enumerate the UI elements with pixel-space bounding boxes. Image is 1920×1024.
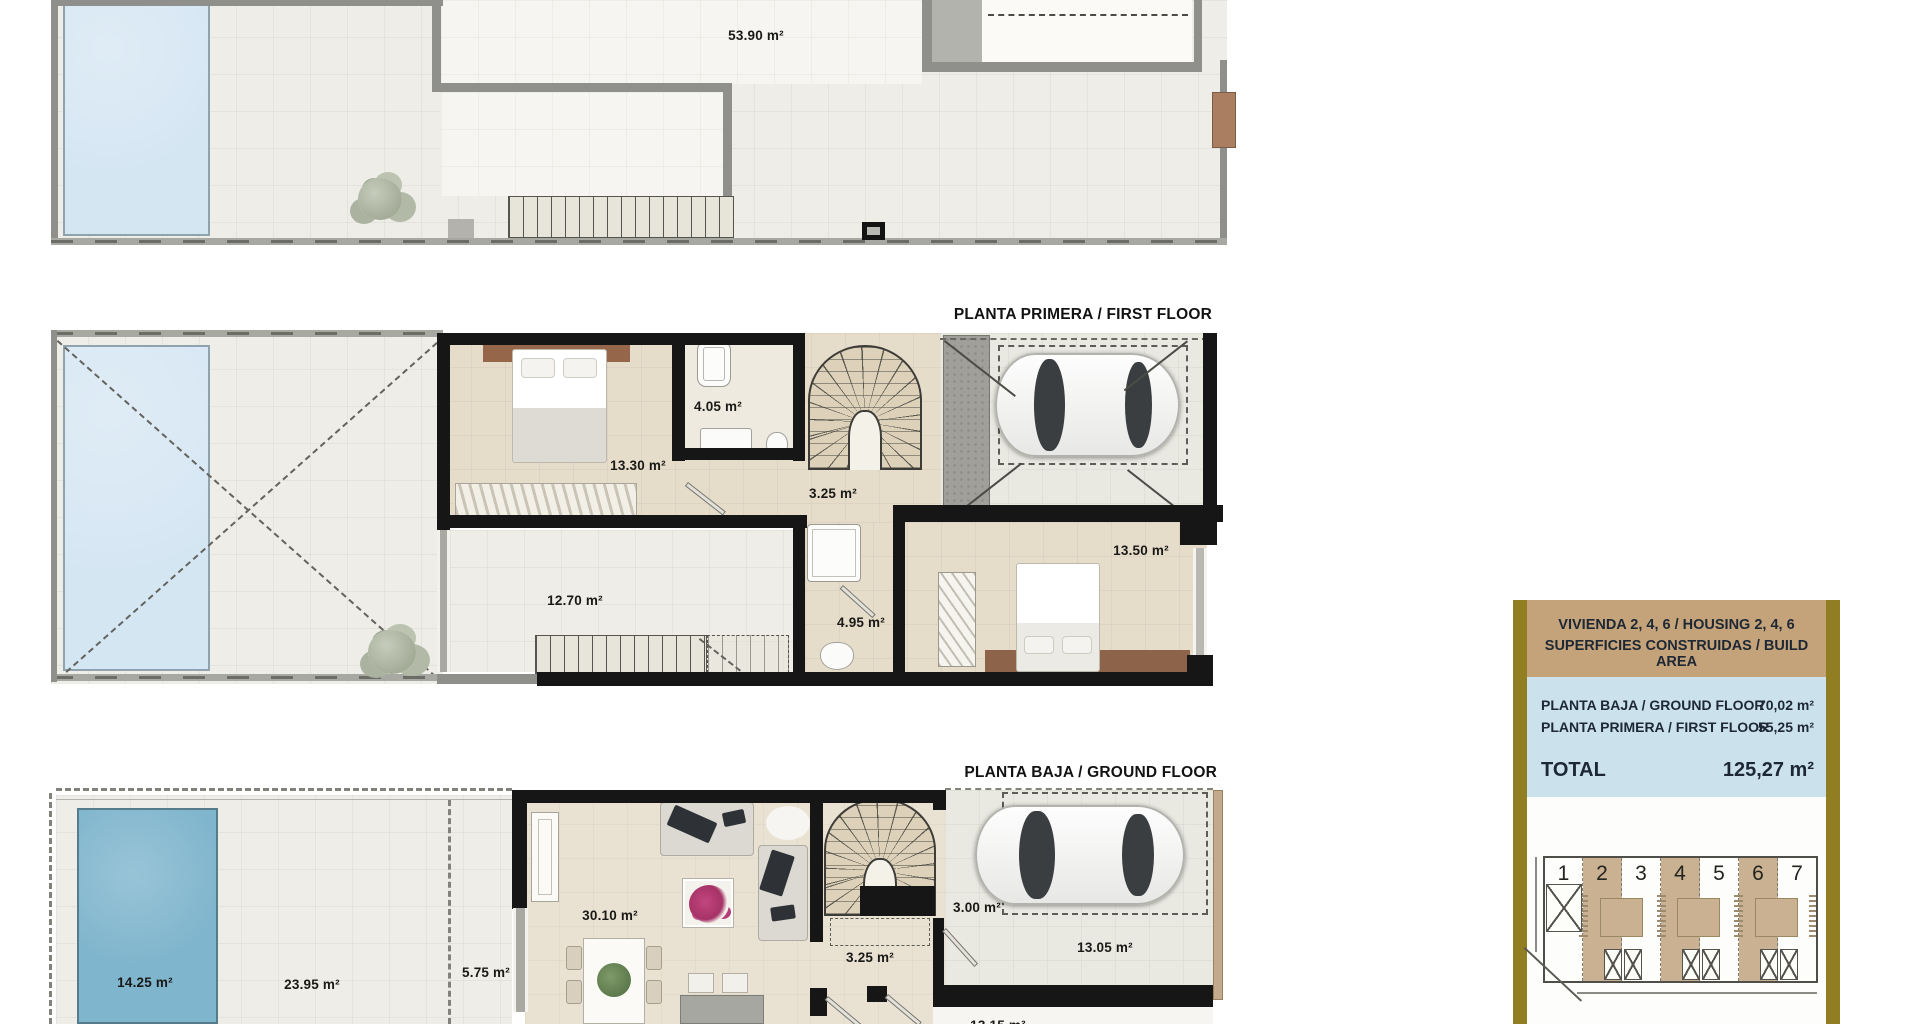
gf-dining-chair-r1	[646, 946, 662, 970]
gf-dining-chair-l1	[566, 946, 582, 970]
site-road-line	[1577, 992, 1817, 994]
panel-total-label: TOTAL	[1541, 759, 1606, 782]
gf-flower-bloom	[689, 885, 729, 923]
bulkhead-wall-right	[1194, 0, 1202, 62]
ff-bed2-pillow-right	[1062, 636, 1092, 654]
site-stair-hatch-3	[1734, 892, 1743, 937]
panel-title-line2: SUPERFICIES CONSTRUIDAS / BUILD AREA	[1527, 638, 1826, 670]
ff-label-bedroom1: 13.30 m²	[610, 458, 666, 473]
gf-flower-plant	[682, 878, 734, 928]
gf-car	[975, 805, 1185, 905]
gf-porch-dash	[448, 800, 451, 1024]
gf-garden-edge	[56, 799, 512, 800]
gf-door-stub-2	[867, 986, 887, 1002]
roof-upper-deck	[441, 0, 923, 84]
ff-wall-bath-stairs	[793, 333, 805, 461]
gf-sofa-top	[660, 802, 754, 856]
ff-wall-bed-bath	[672, 333, 685, 461]
gf-dining-chair-l2	[566, 980, 582, 1004]
gf-wall-entry-top	[933, 790, 946, 810]
ff-bed1	[512, 349, 607, 463]
roof-skylight-marker	[862, 222, 885, 240]
gf-carport-top-dash	[945, 788, 1213, 790]
gf-sofa-right-throw	[759, 849, 795, 896]
ground-floor-title: PLANTA BAJA / GROUND FLOOR	[925, 764, 1217, 782]
first-floor-title: PLANTA PRIMERA / FIRST FLOOR	[920, 306, 1212, 324]
ff-label-bedroom2: 13.50 m²	[1113, 543, 1169, 558]
ff-wall-band-right	[893, 505, 1223, 522]
site-garage-2b	[1702, 949, 1720, 980]
gf-dining-plant	[597, 963, 631, 997]
site-unit1-terrace	[1546, 884, 1582, 932]
gf-kitchen-stool1	[688, 973, 714, 993]
site-core-3	[1755, 898, 1798, 937]
site-garage-2a	[1682, 949, 1700, 980]
roof-plan: 53.90 m²	[0, 0, 1920, 260]
gf-kitchen-stool2	[722, 973, 748, 993]
ff-garage-top-dash	[940, 338, 1208, 340]
gf-sofa-right-cushion	[770, 904, 796, 921]
ff-bathtub	[697, 341, 731, 387]
ff-wall-mid	[437, 515, 807, 528]
ff-bed1-pillow-right	[563, 358, 597, 378]
ff-wall-left	[437, 333, 450, 530]
roof-wall-left	[51, 0, 58, 245]
ff-bedroom1-rug	[455, 483, 637, 517]
gf-label-living: 30.10 m²	[582, 908, 638, 923]
ff-wall-bottom-gray	[437, 674, 537, 684]
ff-label-terrace: 12.70 m²	[547, 593, 603, 608]
ff-wall-step	[1180, 522, 1217, 545]
roof-wall-top	[51, 0, 443, 6]
panel-row2-label: PLANTA PRIMERA / FIRST FLOOR	[1541, 719, 1769, 735]
panel-areas: PLANTA BAJA / GROUND FLOOR 70,02 m² PLAN…	[1527, 677, 1826, 797]
gf-wall-entry-side	[933, 918, 944, 988]
gf-label-carport: 13.05 m²	[1077, 940, 1133, 955]
ff-label-bathroom2: 4.95 m²	[837, 615, 885, 630]
ff-sink	[700, 428, 752, 450]
gf-dining-chair-r2	[646, 980, 662, 1004]
bulkhead-dash-line	[988, 14, 1188, 16]
site-garage-3a	[1760, 949, 1778, 980]
gf-sideboard	[531, 812, 559, 902]
gf-label-hall: 3.25 m²	[846, 950, 894, 965]
roof-brown-element	[1212, 92, 1236, 148]
site-core-2	[1677, 898, 1720, 937]
gf-label-entry: 3.00 m²	[953, 900, 1001, 915]
ff-wardrobe	[938, 572, 976, 667]
gf-sofa-right	[758, 845, 808, 941]
ff-label-bathroom1: 4.05 m²	[694, 399, 742, 414]
roof-wall-inner-horz	[432, 83, 732, 92]
site-stair-hatch-2	[1657, 892, 1666, 937]
gf-wall-left	[512, 803, 527, 909]
gf-wall-bottom	[933, 985, 1213, 1007]
summary-panel: VIVIENDA 2, 4, 6 / HOUSING 2, 4, 6 SUPER…	[1513, 600, 1840, 1024]
roof-staircase	[508, 196, 734, 238]
gf-pool	[77, 808, 218, 1024]
panel-row1-label: PLANTA BAJA / GROUND FLOOR	[1541, 697, 1764, 713]
roof-pool	[63, 0, 210, 236]
roof-wall-right	[1220, 60, 1227, 245]
site-stair-hatch-4	[1809, 892, 1816, 937]
ff-wall-bottom	[537, 672, 1213, 686]
ff-plant	[368, 630, 416, 674]
ff-wall-top	[437, 333, 805, 345]
ff-wall-garage-right	[1203, 333, 1217, 523]
gf-sofa-top-throw	[667, 805, 718, 844]
ff-wall-bath2-right	[893, 522, 905, 672]
gf-stair-dashed-landing	[830, 918, 930, 946]
bulkhead-shade	[932, 0, 982, 62]
ff-bed1-pillow-left	[521, 358, 555, 378]
roof-boundary-bottom	[51, 238, 1227, 245]
ff-terrace-window-band	[437, 530, 450, 672]
ff-concrete-pillar	[943, 335, 990, 507]
site-plot-edge	[1535, 857, 1537, 952]
gf-label-bottom-room: 13.15 m²	[970, 1018, 1026, 1024]
site-plan: 1 2 3 4 5 6 7	[1527, 797, 1826, 1024]
ff-toilet2	[820, 642, 854, 670]
ff-wall-bath-bottom	[672, 448, 805, 460]
bulkhead-wall-bottom	[922, 62, 1202, 72]
roof-plant	[358, 178, 402, 220]
ff-boundary-left	[51, 330, 57, 682]
ff-boundary-bottom	[51, 674, 443, 681]
ff-boundary-top	[51, 330, 443, 337]
panel-title-line1: VIVIENDA 2, 4, 6 / HOUSING 2, 4, 6	[1527, 617, 1826, 633]
gf-door-stub-1	[810, 988, 827, 1016]
gf-wall-under-stairs	[860, 886, 935, 916]
panel-frame-left	[1513, 600, 1527, 1024]
gf-plot-dash-left	[49, 793, 52, 1024]
panel-row2-value: 55,25 m²	[1758, 719, 1814, 735]
roof-wall-inner-vert2	[723, 83, 732, 197]
ff-bed2-pillow-left	[1024, 636, 1054, 654]
gf-sofa-top-cushion	[722, 809, 746, 827]
panel-row1-value: 70,02 m²	[1758, 697, 1814, 713]
floorplan-sheet: 53.90 m² PLANTA PRIMERA / FIRST FLOOR	[0, 0, 1920, 1024]
ff-pool-void	[63, 345, 210, 671]
roof-wall-inner-vert	[432, 0, 441, 92]
gf-label-porch: 5.75 m²	[462, 965, 510, 980]
ff-wall-bed2-corner	[1187, 655, 1213, 686]
panel-frame-right	[1826, 600, 1840, 1024]
site-garage-1b	[1624, 949, 1642, 980]
gf-label-garden: 23.95 m²	[284, 977, 340, 992]
gf-wall-living-stairs	[810, 792, 823, 942]
roof-area-label: 53.90 m²	[728, 28, 784, 43]
gf-left-window-band	[513, 908, 528, 1012]
site-garage-3b	[1780, 949, 1798, 980]
ff-bed2	[1016, 563, 1100, 672]
gf-right-tan-strip	[1213, 790, 1223, 1000]
roof-stair-bulkhead	[922, 0, 1202, 72]
roof-step-block	[448, 219, 474, 238]
ff-wall-bath2-left	[793, 522, 805, 686]
ff-balcony-rail	[1193, 548, 1207, 658]
gf-wall-top	[512, 790, 945, 803]
gf-kitchen-island	[680, 995, 764, 1024]
ff-label-stair-hall: 3.25 m²	[809, 486, 857, 501]
panel-total-value: 125,27 m²	[1723, 759, 1814, 782]
panel-header: VIVIENDA 2, 4, 6 / HOUSING 2, 4, 6 SUPER…	[1527, 600, 1826, 677]
ff-staircase-core	[848, 410, 882, 470]
ff-shower	[807, 524, 861, 582]
bulkhead-floor	[982, 0, 1192, 62]
gf-plot-dash-top	[56, 788, 512, 791]
site-garage-1a	[1604, 949, 1622, 980]
site-core-1	[1600, 898, 1643, 937]
roof-lower-deck	[441, 92, 723, 196]
gf-label-pool: 14.25 m²	[117, 975, 173, 990]
gf-round-rug	[766, 806, 810, 840]
